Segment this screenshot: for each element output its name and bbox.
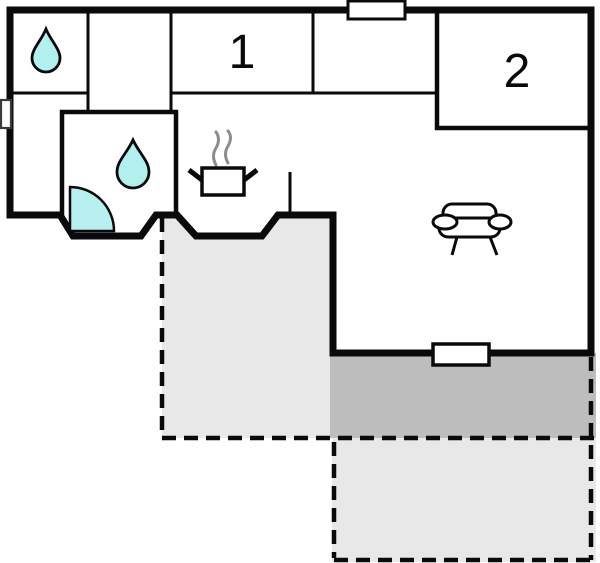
room-1-label: 1 bbox=[229, 26, 256, 79]
window-left bbox=[1, 100, 11, 128]
window-top bbox=[348, 1, 405, 19]
floor-plan: 1 2 bbox=[0, 0, 600, 563]
window-bottom bbox=[433, 344, 489, 365]
pot-body bbox=[202, 168, 244, 195]
terrace-left bbox=[162, 216, 336, 438]
room-2-label: 2 bbox=[504, 45, 531, 98]
floor-plan-canvas: 1 2 bbox=[0, 0, 600, 563]
sofa-armrest-left bbox=[433, 215, 457, 229]
terrace-lower bbox=[332, 438, 596, 562]
sofa-armrest-right bbox=[489, 215, 511, 229]
